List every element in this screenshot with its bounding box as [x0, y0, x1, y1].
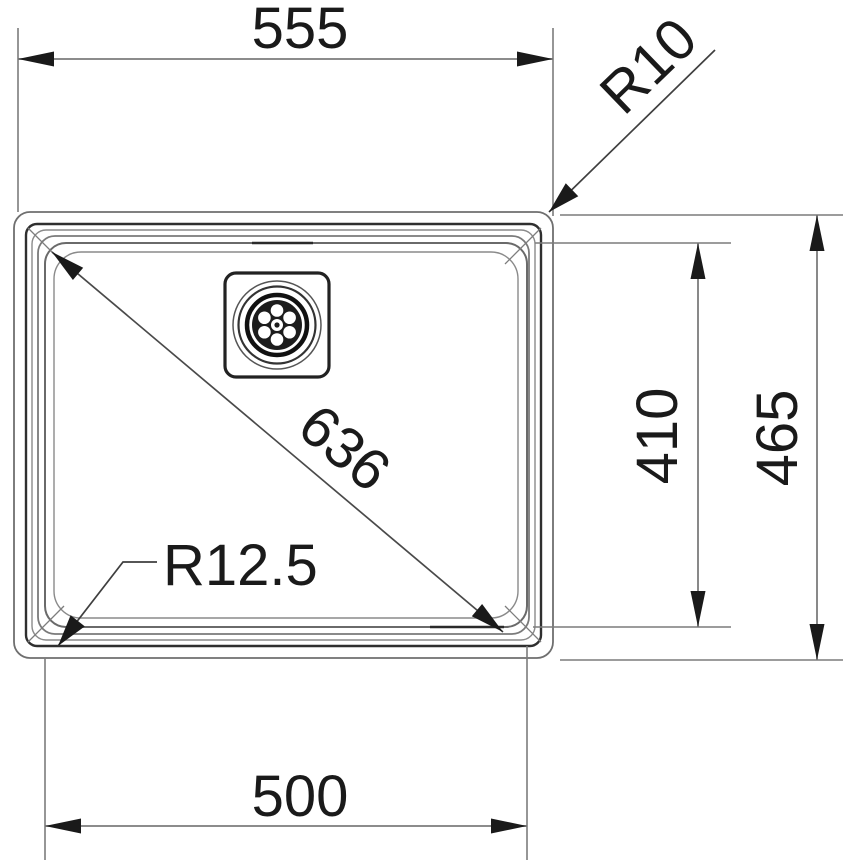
arrowhead-top-left: [47, 246, 83, 280]
drain-assembly: [225, 273, 329, 377]
drain-hole: [258, 311, 271, 324]
radius-callout-outer: R10: [543, 6, 715, 219]
dimension-label-500: 500: [252, 764, 349, 829]
arrowhead-bottom: [810, 624, 825, 660]
drain-center-screw: [274, 322, 279, 327]
radius-label-r10: R10: [588, 6, 710, 127]
radius-label-r12-5: R12.5: [163, 533, 318, 598]
drain-hole: [258, 326, 271, 339]
arrowhead-right: [491, 819, 527, 834]
arrowhead-bottom: [691, 591, 706, 627]
dimension-bowl-width: 500: [45, 646, 527, 860]
drain-hole: [283, 311, 296, 324]
dimension-bowl-depth: 410: [533, 243, 731, 627]
arrowhead-bottom-right: [472, 604, 508, 638]
arrowhead-top: [691, 243, 706, 279]
arrowhead-right: [517, 52, 553, 67]
arrowhead-top: [810, 215, 825, 251]
technical-drawing-canvas: 555 500 465 410 636 R10: [0, 0, 860, 860]
drain-hole: [271, 333, 284, 346]
dimension-label-636: 636: [287, 392, 403, 504]
arrowhead-left: [45, 819, 81, 834]
drain-hole: [283, 326, 296, 339]
arrowhead-left: [18, 52, 54, 67]
drain-hole: [271, 304, 284, 317]
dimension-label-465: 465: [745, 390, 810, 487]
dimension-overall-width: 555: [18, 0, 553, 216]
dimension-label-410: 410: [625, 388, 690, 485]
sink-technical-drawing: 555 500 465 410 636 R10: [0, 0, 860, 860]
dimension-label-555: 555: [252, 0, 349, 61]
